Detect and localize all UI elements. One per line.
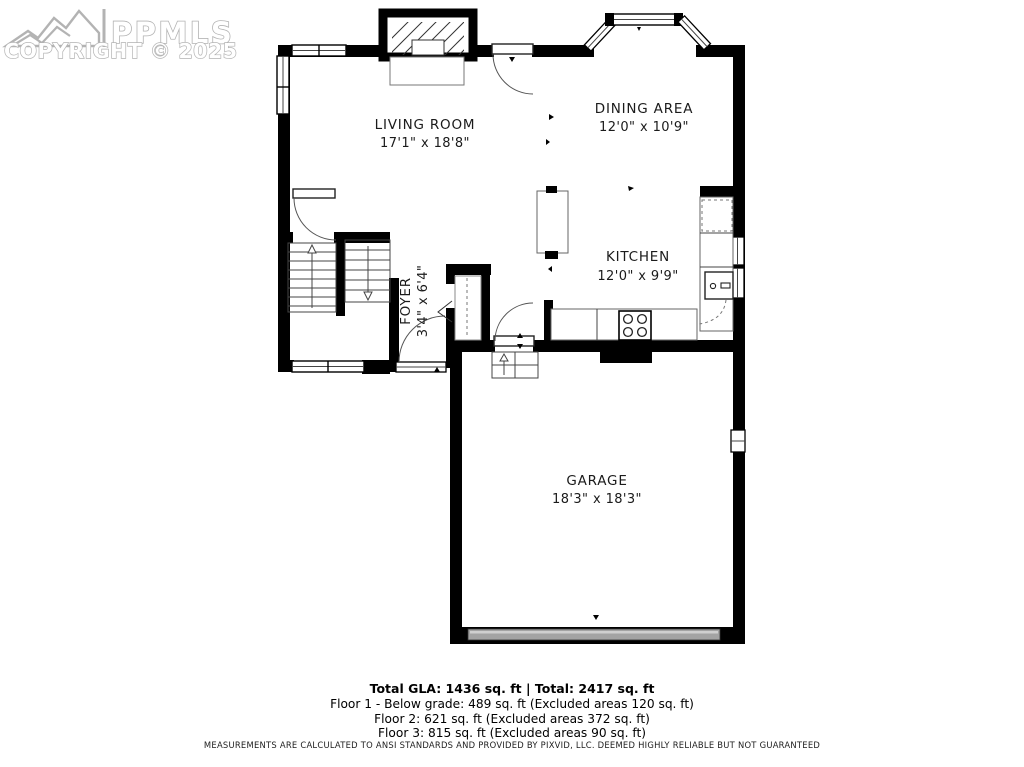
garage-label: GARAGE xyxy=(566,473,627,489)
dining-area-label: DINING AREA xyxy=(595,101,694,117)
floorplan-drawing: PPMLS COPYRIGHT © 2025 xyxy=(0,0,1024,767)
watermark-copyright: COPYRIGHT © 2025 xyxy=(4,39,238,63)
garage-dims: 18'3" x 18'3" xyxy=(552,492,642,507)
foyer-closet xyxy=(455,276,481,340)
disclaimer-line: MEASUREMENTS ARE CALCULATED TO ANSI STAN… xyxy=(0,740,1024,750)
stove xyxy=(619,311,651,340)
kitchen-dims: 12'0" x 9'9" xyxy=(597,269,678,284)
watermark: PPMLS COPYRIGHT © 2025 xyxy=(4,9,238,63)
room-labels: LIVING ROOM 17'1" x 18'8" DINING AREA 12… xyxy=(375,101,694,507)
door-stair-room xyxy=(293,189,336,240)
garage-steps xyxy=(492,352,538,378)
foyer-dims: 3'4" x 6'4" xyxy=(416,265,431,338)
garage-door xyxy=(468,629,720,640)
kitchen-label: KITCHEN xyxy=(606,249,670,265)
floorplan-page: PPMLS COPYRIGHT © 2025 xyxy=(0,0,1024,767)
bay-window xyxy=(584,13,710,51)
garage-entry-door xyxy=(494,303,534,346)
kitchen-counter-right xyxy=(700,197,733,331)
utility-chase xyxy=(600,350,652,363)
living-room-label: LIVING ROOM xyxy=(375,117,476,133)
window-left-wall xyxy=(277,56,289,114)
total-gla-line: Total GLA: 1436 sq. ft | Total: 2417 sq.… xyxy=(0,681,1024,696)
window-top-left xyxy=(292,45,346,56)
foyer-label: FOYER xyxy=(398,277,414,325)
area-summary: Total GLA: 1436 sq. ft | Total: 2417 sq.… xyxy=(0,681,1024,741)
fireplace xyxy=(372,13,496,85)
floor1-line: Floor 1 - Below grade: 489 sq. ft (Exclu… xyxy=(0,697,1024,712)
window-garage xyxy=(731,430,745,452)
floor2-line: Floor 2: 621 sq. ft (Excluded areas 372 … xyxy=(0,712,1024,727)
door-top xyxy=(492,44,533,94)
kitchen-island xyxy=(537,186,568,259)
window-stair-room xyxy=(292,361,364,372)
living-room-dims: 17'1" x 18'8" xyxy=(380,136,470,151)
dining-area-dims: 12'0" x 10'9" xyxy=(599,120,689,135)
hearth xyxy=(390,57,464,85)
floor3-line: Floor 3: 815 sq. ft (Excluded areas 90 s… xyxy=(0,726,1024,741)
kitchen-sink xyxy=(705,272,733,299)
